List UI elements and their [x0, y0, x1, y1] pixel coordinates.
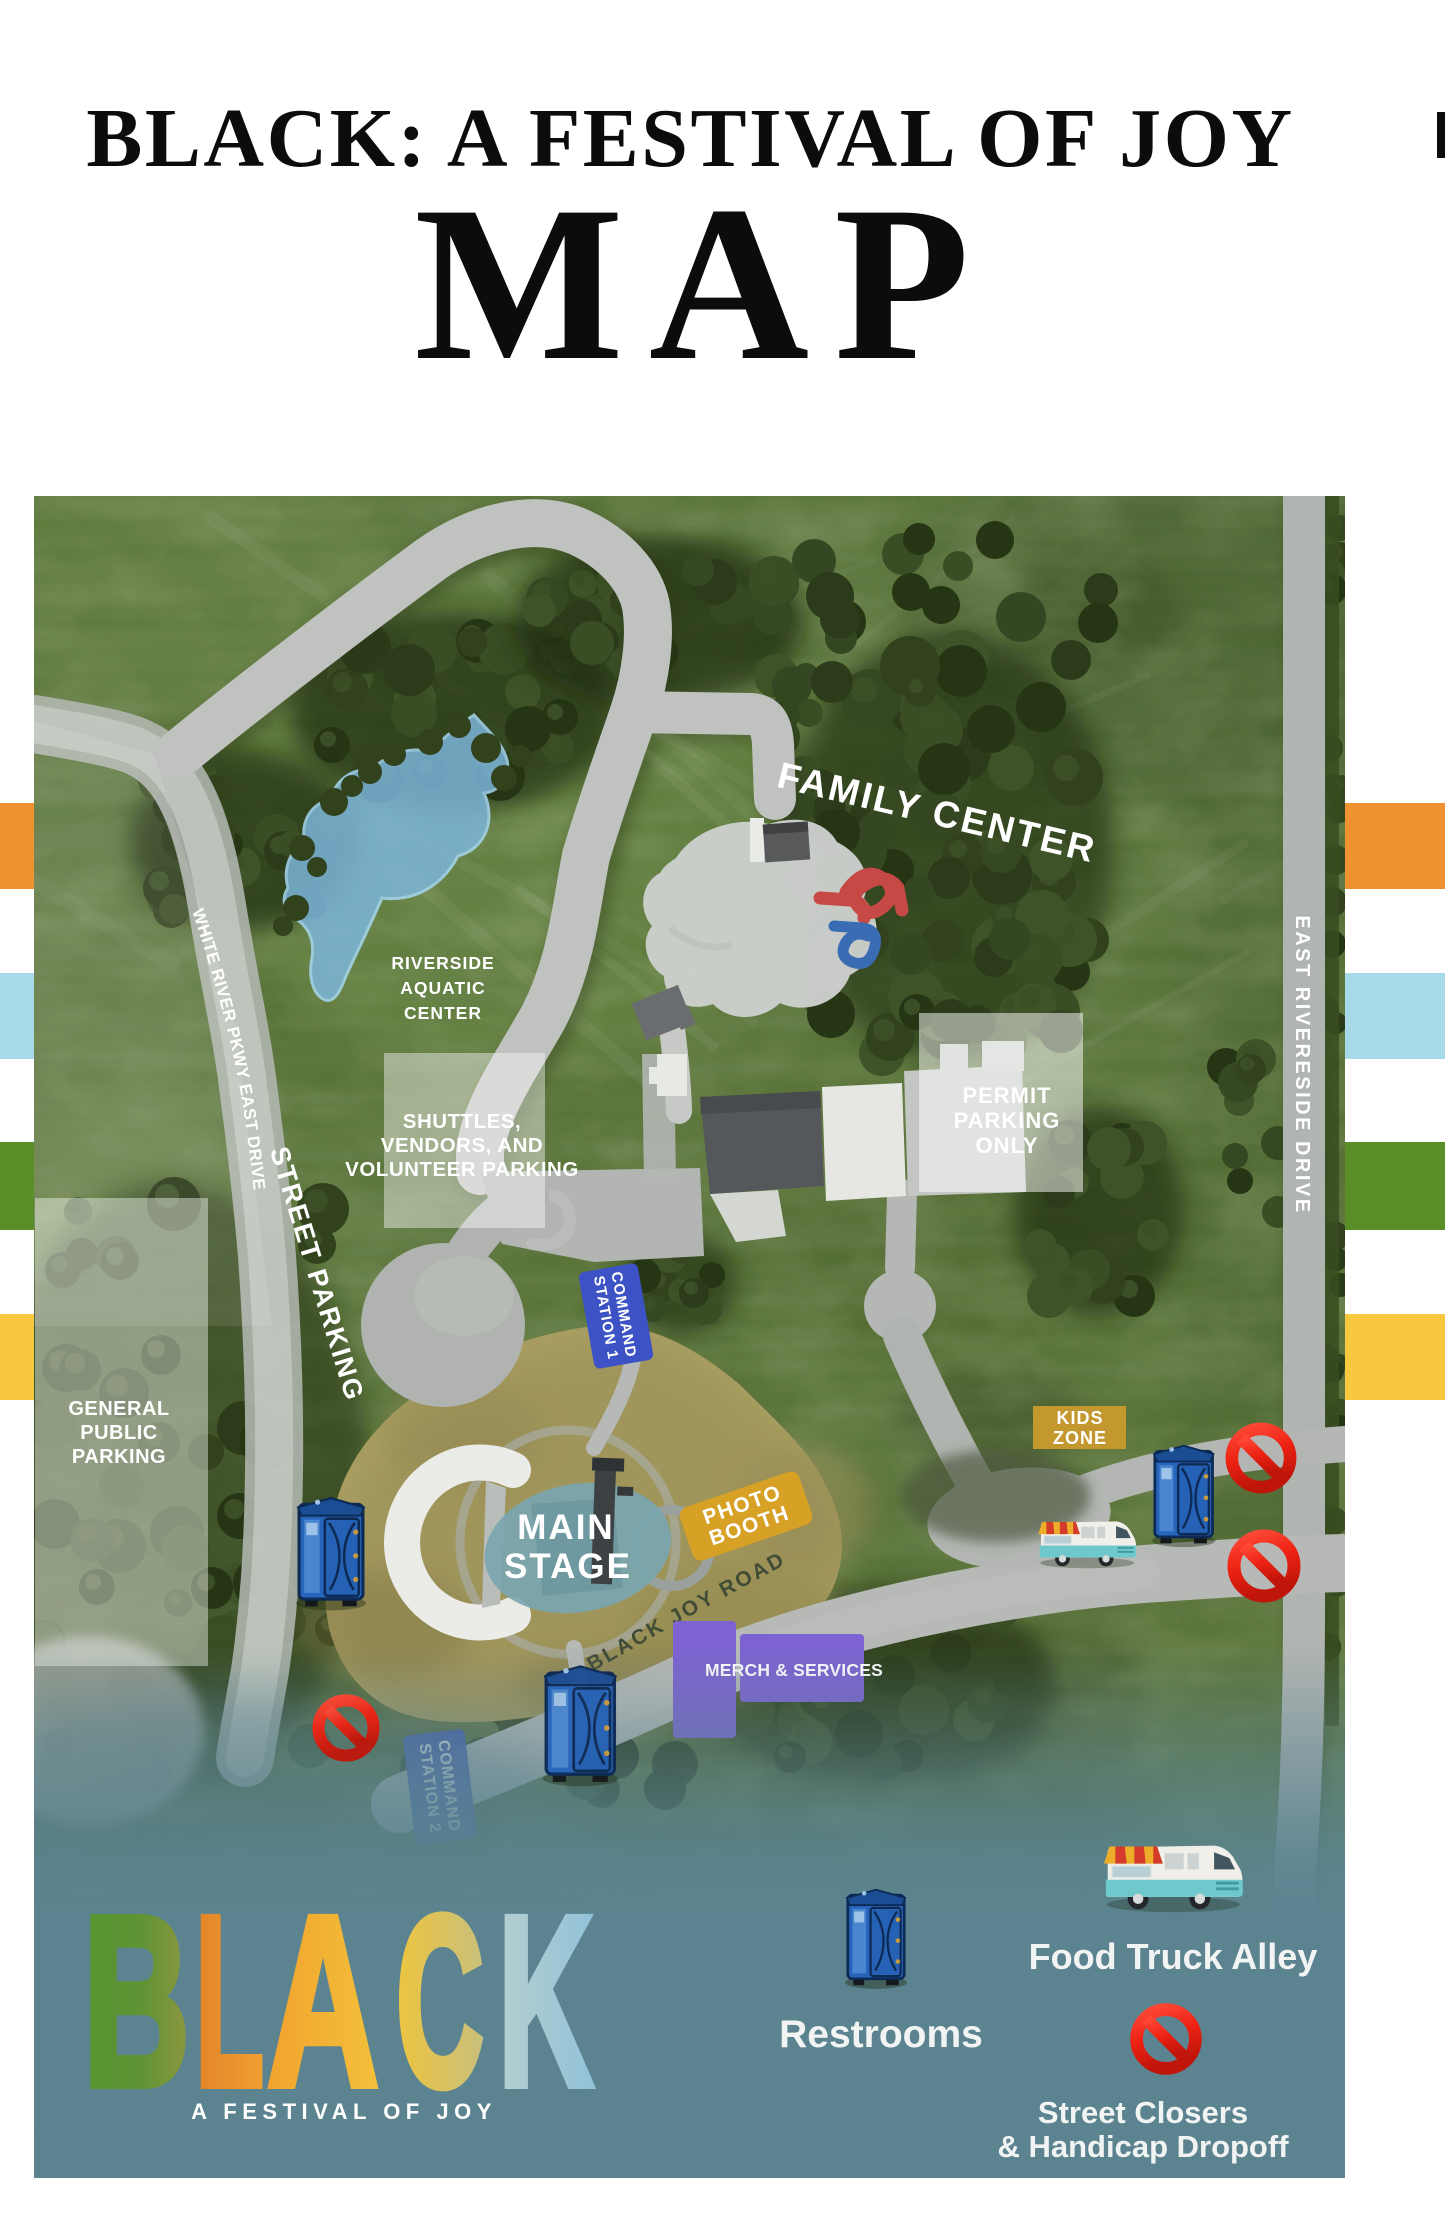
svg-text:& Handicap Dropoff: & Handicap Dropoff — [997, 2129, 1289, 2164]
svg-text:B: B — [83, 1866, 190, 2137]
svg-text:Street Closers: Street Closers — [1038, 2095, 1248, 2130]
svg-text:A FESTIVAL OF JOY: A FESTIVAL OF JOY — [191, 2099, 497, 2124]
svg-text:Restrooms: Restrooms — [779, 2013, 983, 2056]
svg-text:C: C — [396, 1866, 484, 2137]
svg-text:A: A — [267, 1866, 379, 2137]
svg-text:Food Truck Alley: Food Truck Alley — [1029, 1936, 1318, 1977]
svg-text:K: K — [498, 1866, 593, 2137]
svg-text:L: L — [195, 1866, 264, 2137]
